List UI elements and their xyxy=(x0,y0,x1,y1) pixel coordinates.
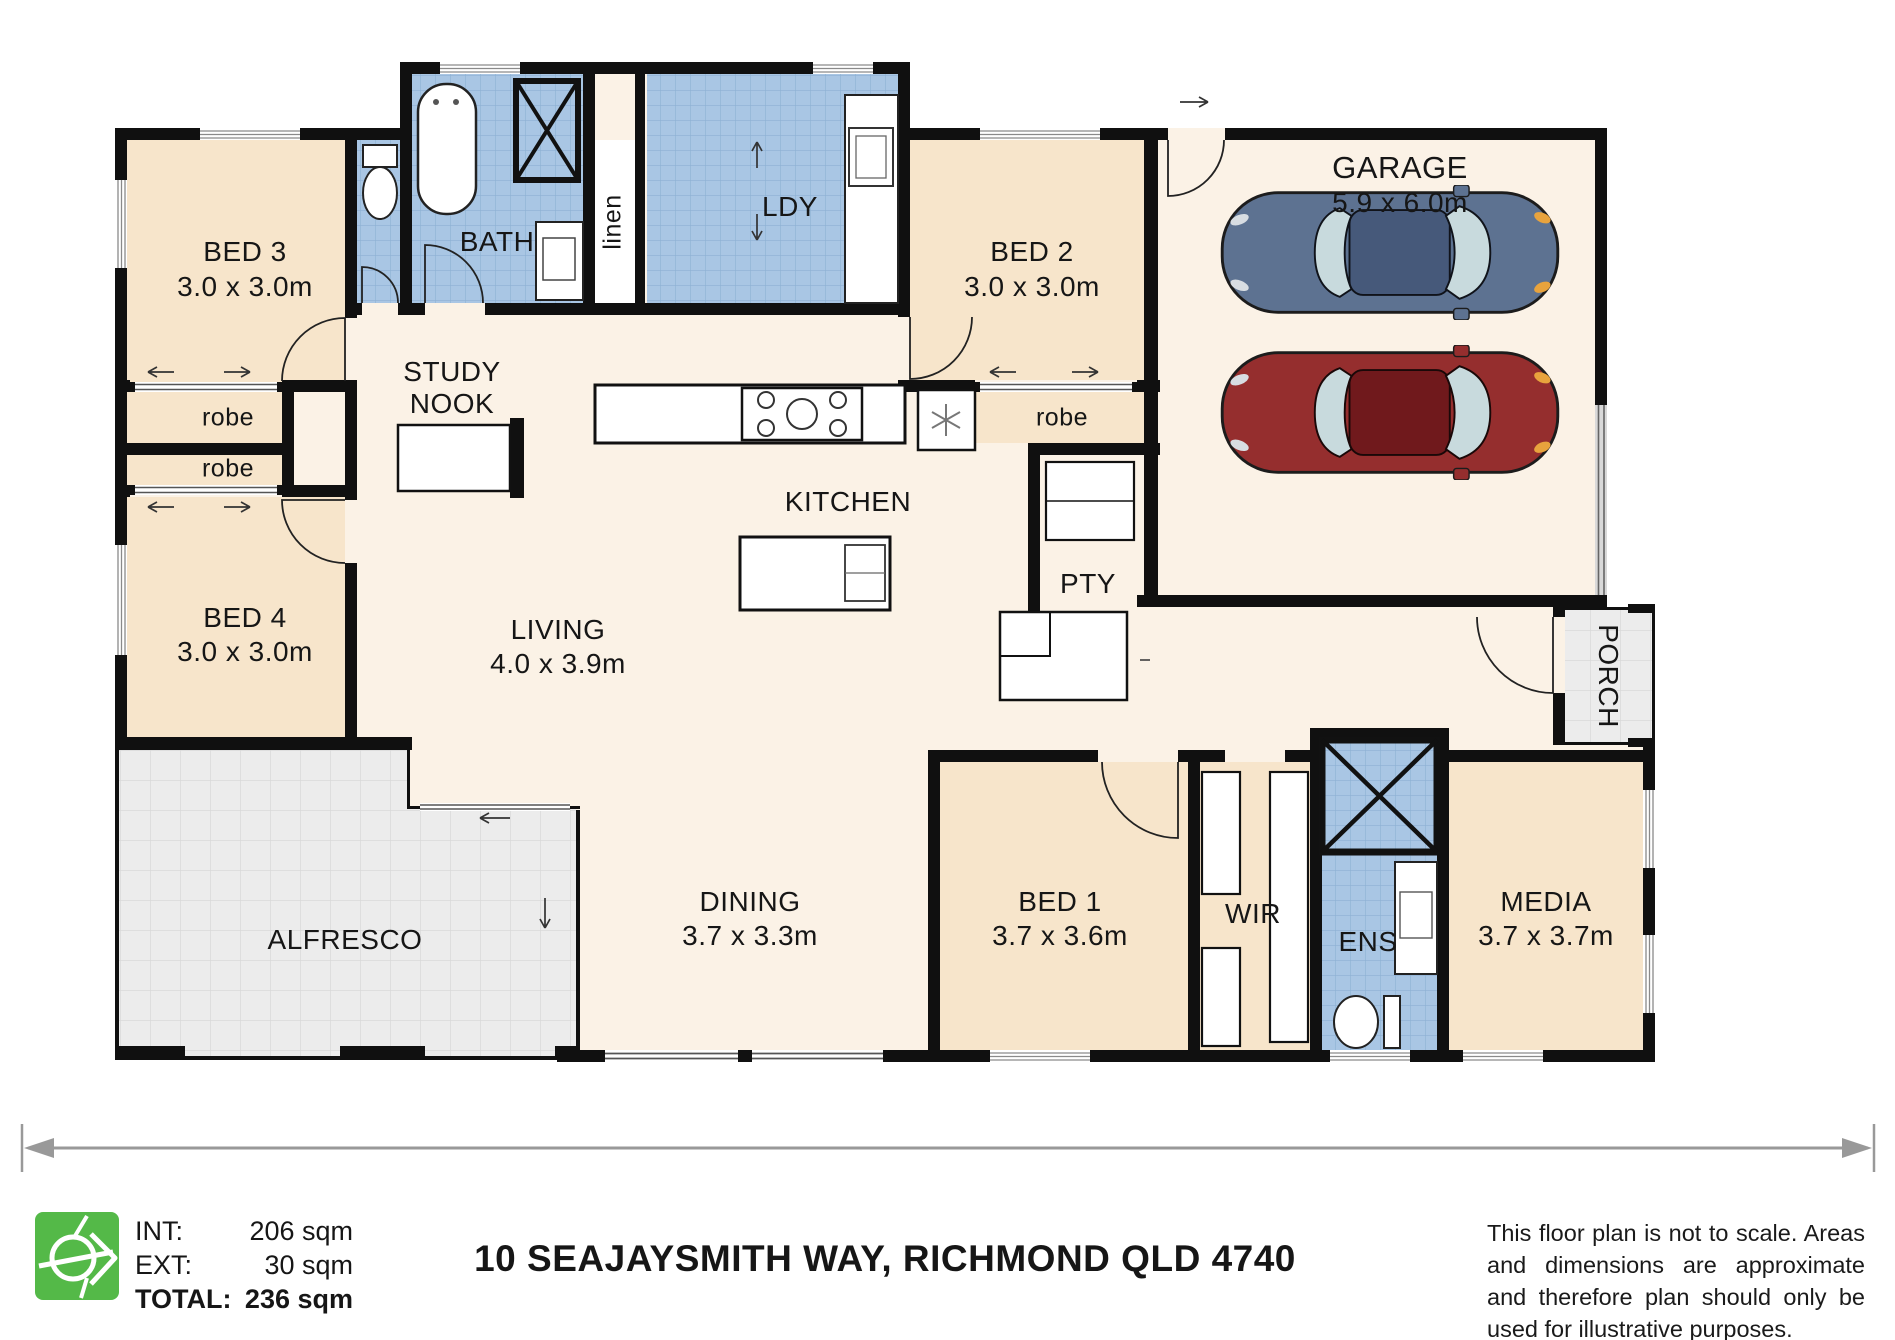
int-value: 206 sqm xyxy=(243,1216,353,1247)
room-label-porch: PORCH xyxy=(1592,624,1624,728)
int-label: INT: xyxy=(135,1216,243,1247)
room-label-bed2: BED 2 xyxy=(990,236,1073,268)
total-value: 236 sqm xyxy=(243,1284,353,1315)
room-dims-bed2: 3.0 x 3.0m xyxy=(964,271,1100,303)
agency-logo-icon xyxy=(35,1212,119,1300)
property-address: 10 SEAJAYSMITH WAY, RICHMOND QLD 4740 xyxy=(474,1238,1296,1280)
room-label-ldy: LDY xyxy=(762,191,818,223)
room-dims-media: 3.7 x 3.7m xyxy=(1478,920,1614,952)
room-label-bath: BATH xyxy=(460,226,535,258)
room-label-media: MEDIA xyxy=(1500,886,1591,918)
room-label-alfresco: ALFRESCO xyxy=(268,924,423,956)
disclaimer-text: This floor plan is not to scale. Areas a… xyxy=(1487,1218,1865,1340)
room-dims-bed1: 3.7 x 3.6m xyxy=(992,920,1128,952)
scale-arrow xyxy=(18,1122,1878,1174)
floor-plan-page: BED 3 3.0 x 3.0m BATH linen LDY BED 2 3.… xyxy=(0,0,1895,1340)
total-label: TOTAL: xyxy=(135,1284,243,1315)
room-label-bed1: BED 1 xyxy=(1018,886,1101,918)
room-dims-bed3: 3.0 x 3.0m xyxy=(177,271,313,303)
room-label-study-nook-1: STUDY xyxy=(403,356,500,388)
room-label-robe-bed3-top: robe xyxy=(202,404,254,433)
ext-value: 30 sqm xyxy=(243,1250,353,1281)
room-label-garage: GARAGE xyxy=(1332,150,1468,186)
room-dims-bed4: 3.0 x 3.0m xyxy=(177,636,313,668)
area-stats: INT: 206 sqm EXT: 30 sqm TOTAL: 236 sqm xyxy=(135,1216,353,1315)
room-label-linen: linen xyxy=(599,194,628,249)
ext-label: EXT: xyxy=(135,1250,243,1281)
room-label-dining: DINING xyxy=(700,886,801,918)
room-label-bed3: BED 3 xyxy=(203,236,286,268)
room-label-robe-bed2: robe xyxy=(1036,404,1088,433)
room-label-kitchen: KITCHEN xyxy=(785,486,911,518)
room-label-wir: WIR xyxy=(1225,898,1281,930)
room-label-pty: PTY xyxy=(1060,568,1116,600)
room-label-ens: ENS xyxy=(1338,926,1397,958)
room-dims-garage: 5.9 x 6.0m xyxy=(1332,187,1468,219)
room-dims-dining: 3.7 x 3.3m xyxy=(682,920,818,952)
room-label-robe-bed3-bot: robe xyxy=(202,455,254,484)
room-label-bed4: BED 4 xyxy=(203,602,286,634)
room-label-living: LIVING xyxy=(511,614,606,646)
room-label-study-nook-2: NOOK xyxy=(410,388,494,420)
room-dims-living: 4.0 x 3.9m xyxy=(490,648,626,680)
car-red xyxy=(1215,345,1565,480)
